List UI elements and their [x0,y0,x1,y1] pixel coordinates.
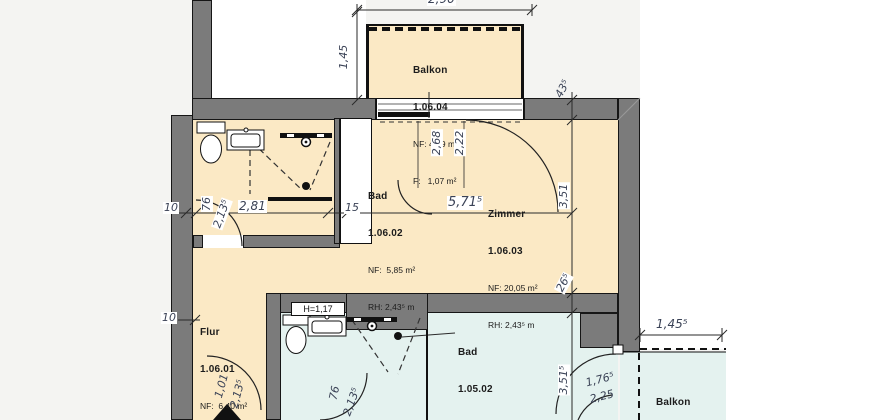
dim-flur-wall: 10 [161,312,177,324]
dim-right-zimmer: 3,51 [558,183,570,210]
dim-bad-door-width: 76 [201,196,213,212]
drain-icon [302,182,310,190]
room-number: 1.06.02 [368,227,415,240]
wall-corner-joint [618,98,640,120]
dim-balkon-lower-width: 1,45⁵ [655,318,689,331]
toilet-lower-icon [283,315,310,354]
room-name: Bad [458,346,505,359]
floorplan-canvas: Balkon 1.06.04 NF: 4,29 m² F: 1,07 m² Ba… [0,0,870,420]
room-floor-area: F: 1,07 m² [413,175,458,187]
room-name: Balkon [413,64,458,77]
dim-balcony-door-outer: 2,68 [431,130,443,157]
dim-zimmer-width: 5,71⁵ [447,196,483,210]
dim-left-wall: 10 [163,202,179,214]
sink-lower-icon [308,315,346,336]
dim-balcony-height: 1,45 [338,44,350,71]
room-label-balkon-lower: Balkon 1.05.04 NF: 2,86 m² F: 0,71 m² [656,372,701,420]
room-height: RH: 2,43⁵ m [368,301,415,313]
dim-right-lower-zimmer: 3,51⁵ [558,365,570,396]
room-number: 1.06.03 [488,245,538,258]
room-number: 1.06.04 [413,101,458,114]
dim-bad-width: 2,81 [238,200,267,213]
room-label-bad-upper: Bad 1.06.02 NF: 5,85 m² RH: 2,43⁵ m [368,166,415,337]
sink-upper-icon [227,128,264,150]
room-name: Zimmer [488,208,538,221]
room-label-balkon-upper: Balkon 1.06.04 NF: 4,29 m² F: 1,07 m² [413,40,458,211]
wall-height-note: H=1,17 [291,302,345,316]
room-name: Bad [368,190,415,203]
dim-balcony-door-inner: 2,22 [454,130,466,157]
room-name: Flur [200,326,247,339]
room-name: Balkon [656,396,701,409]
toilet-upper-icon [197,122,225,163]
room-area: NF: 20,05 m² [488,282,538,294]
room-area: NF: 5,85 m² [368,264,415,276]
room-number: 1.05.02 [458,383,505,396]
dim-shaft-wall: 15 [344,202,360,214]
dim-top-width: 2,90 [427,0,456,6]
room-label-zimmer-lower: Zimmer [478,402,515,420]
